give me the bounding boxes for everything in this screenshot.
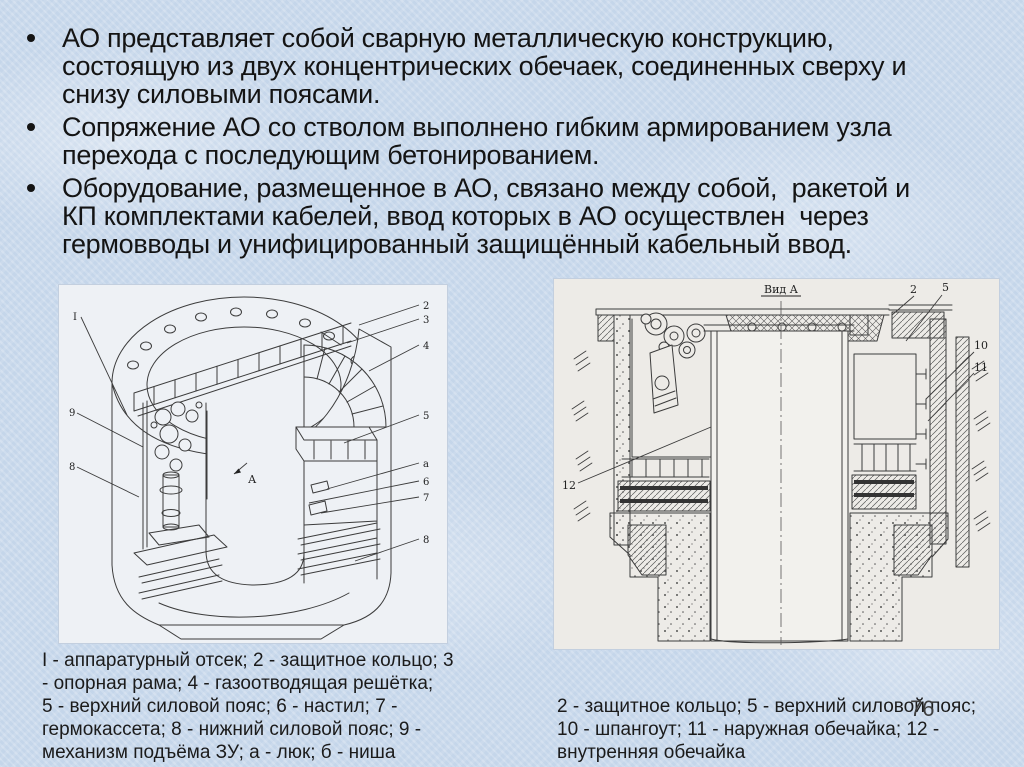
- label-frame-rib: 10: [974, 339, 988, 352]
- bullet-line: гермовводы и унифицированный защищённый …: [62, 230, 910, 258]
- bullet-line: перехода с последующим бетонированием.: [62, 141, 892, 169]
- figure-silo-cross-section: Вид А 2 5 10 11 12: [553, 278, 1000, 650]
- caption-line: гермокассета; 8 - нижний силовой пояс; 9…: [42, 718, 454, 741]
- bullet-item: Оборудование, размещенное в АО, связано …: [22, 174, 1017, 258]
- equipment-bay-cutaway-diagram: I 9 8 2 3 4 5 а 6 7 8 А: [59, 285, 447, 643]
- label-outer-shell: 11: [974, 361, 988, 374]
- upper-force-belt-shelf: [296, 427, 377, 461]
- label-protective-ring: 2: [423, 301, 429, 312]
- bullet-text: Сопряжение АО со стволом выполнено гибки…: [62, 113, 892, 169]
- label-support-frame: 3: [423, 315, 429, 326]
- bullet-line: состоящую из двух концентрических обечае…: [62, 52, 906, 80]
- page-number: 76: [910, 696, 934, 722]
- label-mechanism: 9: [69, 408, 75, 419]
- bullet-marker-icon: [27, 123, 35, 131]
- caption-line: 5 - верхний силовой пояс; 6 - настил; 7 …: [42, 695, 454, 718]
- left-chamber-structure: [610, 457, 711, 641]
- bullet-list: АО представляет собой сварную металличес…: [22, 24, 1017, 263]
- label-inner-shell: 12: [562, 479, 576, 492]
- label-upper-belt: 5: [942, 281, 949, 294]
- bullet-line: АО представляет собой сварную металличес…: [62, 24, 906, 52]
- bullet-line: снизу силовыми поясами.: [62, 80, 906, 108]
- caption-line: внутренняя обечайка: [557, 741, 976, 764]
- label-gas-grid: 4: [423, 341, 429, 352]
- roller-mechanism-cluster: [632, 313, 705, 457]
- caption-line: - опорная рама; 4 - газоотводящая решётк…: [42, 672, 454, 695]
- label-lower-belt: 8: [423, 535, 429, 546]
- bullet-text: АО представляет собой сварную металличес…: [62, 24, 906, 108]
- label-upper-belt: 5: [423, 411, 429, 422]
- bullet-item: АО представляет собой сварную металличес…: [22, 24, 1017, 108]
- bullet-item: Сопряжение АО со стволом выполнено гибки…: [22, 113, 1017, 169]
- bullet-line: Оборудование, размещенное в АО, связано …: [62, 174, 910, 202]
- label-deck: 6: [423, 477, 429, 488]
- label-hermo-cassette: 7: [423, 493, 429, 504]
- bullet-marker-icon: [27, 184, 35, 192]
- label-view-arrow: А: [248, 473, 257, 486]
- label-protective-ring: 2: [910, 283, 917, 296]
- label-hatch: а: [423, 459, 429, 470]
- left-figure-caption: I - аппаратурный отсек; 2 - защитное кол…: [42, 649, 454, 764]
- label-lower-belt-left: 8: [69, 462, 75, 473]
- view-a-label: Вид А: [764, 283, 799, 296]
- figure-equipment-bay-cutaway: I 9 8 2 3 4 5 а 6 7 8 А: [58, 284, 448, 644]
- bullet-marker-icon: [27, 34, 35, 42]
- bullet-text: Оборудование, размещенное в АО, связано …: [62, 174, 910, 258]
- caption-line: механизм подъёма ЗУ; а - люк; б - ниша: [42, 741, 454, 764]
- bullet-line: КП комплектами кабелей, ввод которых в А…: [62, 202, 910, 230]
- silo-cross-section-diagram: Вид А 2 5 10 11 12: [554, 279, 999, 649]
- bullet-line: Сопряжение АО со стволом выполнено гибки…: [62, 113, 892, 141]
- label-compartment: I: [73, 312, 77, 323]
- caption-line: I - аппаратурный отсек; 2 - защитное кол…: [42, 649, 454, 672]
- presentation-slide: АО представляет собой сварную металличес…: [0, 0, 1024, 767]
- central-shaft: [704, 325, 854, 643]
